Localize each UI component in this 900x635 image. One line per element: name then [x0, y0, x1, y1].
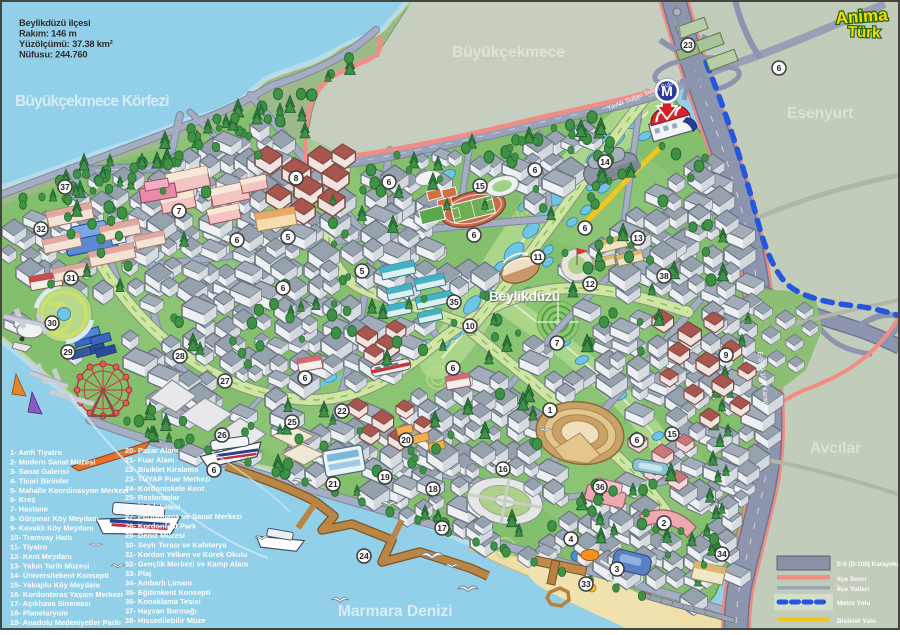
- svg-text:18: 18: [428, 484, 438, 494]
- svg-text:22: 22: [337, 406, 347, 416]
- svg-text:36- Konaklama Tesisi: 36- Konaklama Tesisi: [125, 597, 201, 606]
- svg-text:8: 8: [294, 173, 299, 183]
- svg-text:Büyükçekmece Körfezi: Büyükçekmece Körfezi: [15, 93, 169, 110]
- svg-text:10- Tramvay Hattı: 10- Tramvay Hattı: [10, 533, 72, 542]
- svg-text:11- Tiyatro: 11- Tiyatro: [10, 543, 48, 552]
- svg-text:Metro Yolu: Metro Yolu: [837, 600, 870, 607]
- svg-text:37- Hayvan Barınağı: 37- Hayvan Barınağı: [125, 607, 197, 616]
- svg-text:36: 36: [595, 482, 605, 492]
- svg-text:18- Planetaryum: 18- Planetaryum: [10, 609, 68, 618]
- svg-text:6: 6: [451, 363, 456, 373]
- svg-text:21- Fuar Alanı: 21- Fuar Alanı: [125, 455, 174, 464]
- svg-text:2: 2: [662, 518, 667, 528]
- svg-text:14: 14: [600, 157, 610, 167]
- svg-text:25: 25: [287, 417, 297, 427]
- svg-text:13- Yakın Tarih Müzesi: 13- Yakın Tarih Müzesi: [10, 561, 89, 570]
- svg-text:23: 23: [683, 40, 693, 50]
- svg-text:6: 6: [235, 235, 240, 245]
- svg-text:3: 3: [615, 564, 620, 574]
- svg-text:31- Kordon Yelken ve Kürek Oku: 31- Kordon Yelken ve Kürek Okulu: [125, 550, 248, 559]
- svg-text:21: 21: [328, 479, 338, 489]
- svg-text:29- Deniz Müzesi: 29- Deniz Müzesi: [125, 531, 185, 540]
- svg-text:20: 20: [401, 435, 411, 445]
- svg-text:34- Ambarlı Limanı: 34- Ambarlı Limanı: [125, 578, 192, 587]
- svg-text:Esenyurt: Esenyurt: [787, 105, 853, 122]
- svg-text:7- Hastane: 7- Hastane: [10, 505, 48, 514]
- svg-text:15: 15: [475, 181, 485, 191]
- svg-text:34: 34: [717, 549, 727, 559]
- svg-text:15- Yakuplu Köy Meydanı: 15- Yakuplu Köy Meydanı: [10, 580, 100, 589]
- svg-text:6- Kreş: 6- Kreş: [10, 495, 35, 504]
- svg-text:6: 6: [777, 63, 782, 73]
- svg-text:19: 19: [380, 472, 390, 482]
- svg-text:Avcılar: Avcılar: [810, 440, 861, 457]
- svg-text:33: 33: [581, 579, 591, 589]
- svg-text:16- Kordonteras Yaşam Merkezi: 16- Kordonteras Yaşam Merkezi: [10, 590, 123, 599]
- svg-text:24: 24: [359, 551, 369, 561]
- svg-text:3- Sanat Galerisi: 3- Sanat Galerisi: [10, 467, 69, 476]
- svg-text:13: 13: [633, 233, 643, 243]
- svg-text:5- Mahalle Koordinasyon Merkez: 5- Mahalle Koordinasyon Merkezi: [10, 486, 128, 495]
- svg-text:11: 11: [534, 252, 543, 262]
- svg-text:1- Amfi Tiyatro: 1- Amfi Tiyatro: [10, 448, 63, 457]
- svg-text:35- Eğitimkent Konsepti: 35- Eğitimkent Konsepti: [125, 588, 210, 597]
- svg-text:10: 10: [465, 321, 475, 331]
- svg-text:14- Üniversitekent Konsepti: 14- Üniversitekent Konsepti: [10, 571, 109, 580]
- svg-text:6: 6: [212, 465, 217, 475]
- svg-text:Beylikdüzü: Beylikdüzü: [489, 289, 560, 304]
- svg-text:20- Pazar Alanı: 20- Pazar Alanı: [125, 446, 178, 455]
- svg-text:22- Bisiklet Kiralama: 22- Bisiklet Kiralama: [125, 465, 199, 474]
- svg-text:31: 31: [66, 273, 76, 283]
- svg-text:9- Kavaklı Köy Meydanı: 9- Kavaklı Köy Meydanı: [10, 524, 93, 533]
- svg-text:23- TÜYAP Fuar Merkezi: 23- TÜYAP Fuar Merkezi: [125, 474, 210, 483]
- svg-text:Yüzölçümü: 37.38 km²: Yüzölçümü: 37.38 km²: [19, 39, 113, 49]
- svg-text:Bisiklet Yolu: Bisiklet Yolu: [837, 618, 876, 625]
- svg-text:E-5 (D-100) Karayolu: E-5 (D-100) Karayolu: [837, 561, 899, 568]
- svg-text:35: 35: [449, 297, 459, 307]
- svg-text:Beylikdüzü ilçesi: Beylikdüzü ilçesi: [19, 18, 91, 28]
- svg-text:24- Kordoniskele Kent: 24- Kordoniskele Kent: [125, 484, 205, 493]
- svg-text:28- Kordonfest Park: 28- Kordonfest Park: [125, 522, 197, 531]
- svg-text:12: 12: [585, 279, 595, 289]
- svg-text:4: 4: [569, 534, 574, 544]
- svg-text:38: 38: [659, 271, 669, 281]
- svg-text:7: 7: [177, 206, 182, 216]
- svg-text:6: 6: [583, 223, 588, 233]
- svg-text:28: 28: [175, 351, 185, 361]
- svg-text:32- Gençlik Merkezi ve Kamp Al: 32- Gençlik Merkezi ve Kamp Alanı: [125, 559, 248, 568]
- svg-text:1: 1: [548, 405, 553, 415]
- svg-text:38- Hissedilebilir Müze: 38- Hissedilebilir Müze: [125, 616, 205, 625]
- svg-text:37: 37: [60, 182, 70, 192]
- svg-text:30- Seyir Terası ve Kafeterya: 30- Seyir Terası ve Kafeterya: [125, 541, 227, 550]
- svg-text:27- Performans ve Sanat Merkez: 27- Performans ve Sanat Merkezi: [125, 512, 242, 521]
- svg-text:İlçe Yolları: İlçe Yolları: [837, 585, 870, 593]
- svg-text:6: 6: [281, 283, 286, 293]
- svg-text:6: 6: [387, 177, 392, 187]
- svg-text:2- Modern Sanat Müzesi: 2- Modern Sanat Müzesi: [10, 457, 95, 466]
- svg-text:Rakım: 146 m: Rakım: 146 m: [19, 29, 77, 39]
- svg-text:32: 32: [36, 224, 46, 234]
- svg-text:9: 9: [724, 350, 729, 360]
- svg-text:17- Açıkhava Sineması: 17- Açıkhava Sineması: [10, 599, 91, 608]
- svg-text:Türk: Türk: [848, 23, 882, 41]
- svg-text:5: 5: [360, 266, 365, 276]
- svg-text:25- Restoranlar: 25- Restoranlar: [125, 493, 180, 502]
- svg-text:8- Gürpınar Köy Meydanı: 8- Gürpınar Köy Meydanı: [10, 514, 99, 523]
- svg-text:33- Plaj: 33- Plaj: [125, 569, 151, 578]
- svg-text:İlçe Sınırı: İlçe Sınırı: [837, 575, 866, 583]
- svg-text:30: 30: [47, 318, 57, 328]
- svg-text:26: 26: [217, 430, 227, 440]
- svg-text:19- Anadolu Medeniyetler Parkı: 19- Anadolu Medeniyetler Parkı: [10, 618, 121, 627]
- svg-text:4- Ticari Birimler: 4- Ticari Birimler: [10, 476, 69, 485]
- svg-text:6: 6: [472, 230, 477, 240]
- svg-text:6: 6: [303, 373, 308, 383]
- svg-text:6: 6: [533, 165, 538, 175]
- svg-text:27: 27: [220, 376, 230, 386]
- svg-text:7: 7: [555, 338, 560, 348]
- svg-text:6: 6: [635, 435, 640, 445]
- svg-text:5: 5: [286, 232, 291, 242]
- svg-text:Marmara Denizi: Marmara Denizi: [338, 603, 453, 620]
- svg-text:17: 17: [437, 523, 447, 533]
- svg-text:12- Kent Meydanı: 12- Kent Meydanı: [10, 552, 72, 561]
- svg-text:Büyükçekmece: Büyükçekmece: [452, 44, 565, 61]
- svg-text:29: 29: [63, 347, 73, 357]
- svg-text:26- İDO İskelesi: 26- İDO İskelesi: [125, 503, 180, 512]
- svg-text:Nüfusu: 244.760: Nüfusu: 244.760: [19, 50, 87, 60]
- svg-text:16: 16: [498, 464, 508, 474]
- svg-text:15: 15: [667, 429, 677, 439]
